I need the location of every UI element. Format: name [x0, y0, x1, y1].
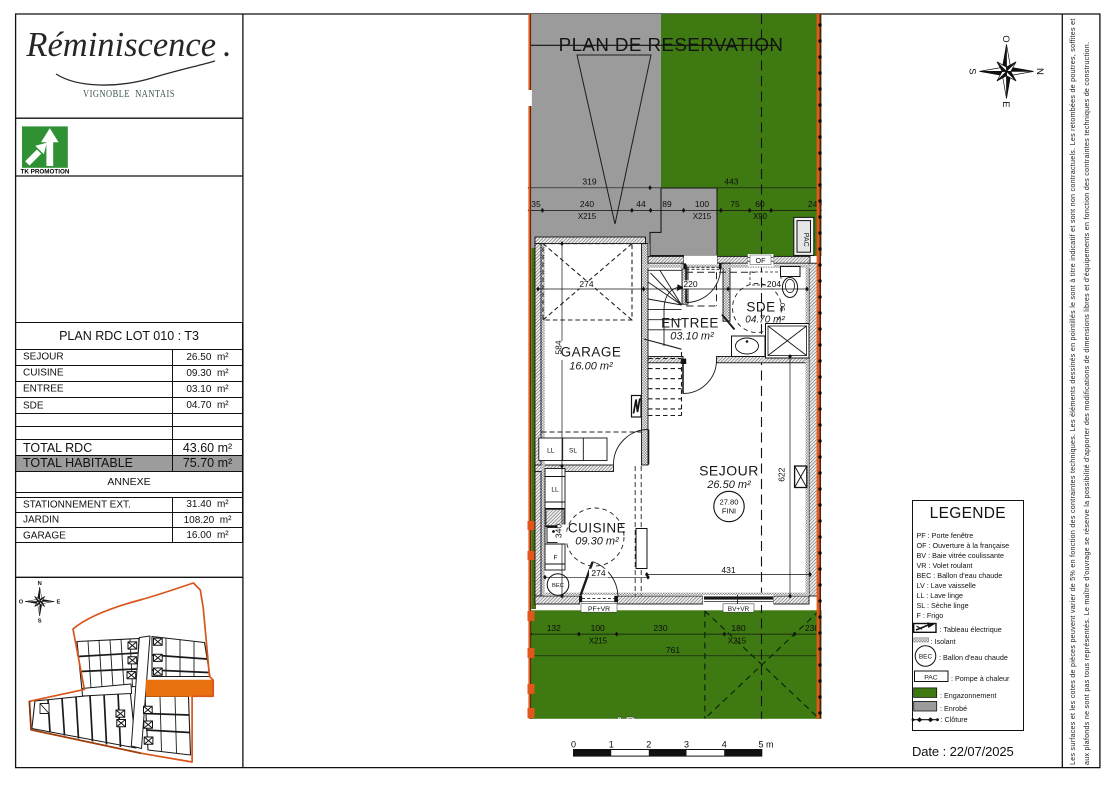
svg-text:S: S: [967, 68, 978, 74]
svg-text:N: N: [38, 581, 42, 587]
svg-text:X90: X90: [753, 212, 768, 221]
svg-text:LL: LL: [547, 447, 555, 454]
svg-text:26.50 m²: 26.50 m²: [706, 479, 751, 491]
svg-text:ENTREE: ENTREE: [661, 316, 719, 331]
svg-text:220: 220: [683, 279, 697, 289]
svg-text:5 m: 5 m: [758, 740, 773, 750]
svg-text:204: 204: [767, 279, 781, 289]
svg-text:16.00 m²: 16.00 m²: [569, 361, 613, 373]
svg-text:90: 90: [778, 303, 787, 311]
svg-text:O: O: [1000, 35, 1011, 42]
svg-text:3: 3: [684, 740, 689, 750]
svg-text:SEJOUR: SEJOUR: [699, 463, 759, 479]
svg-text:04.70 m²: 04.70 m²: [745, 315, 785, 326]
svg-text:132: 132: [547, 623, 561, 633]
svg-text:274: 274: [591, 568, 605, 578]
svg-text:BV+VR: BV+VR: [728, 606, 750, 613]
svg-text:E: E: [56, 600, 60, 606]
svg-text:230: 230: [653, 623, 667, 633]
svg-text:CUISINE: CUISINE: [568, 521, 626, 536]
svg-text:AR: AR: [614, 714, 637, 731]
svg-text:SDE: SDE: [746, 300, 775, 315]
svg-text:443: 443: [724, 176, 738, 186]
svg-text:LL: LL: [551, 487, 559, 494]
svg-text:OF: OF: [756, 256, 767, 265]
svg-text:240: 240: [580, 199, 594, 209]
svg-text:X215: X215: [578, 212, 597, 221]
svg-text:75: 75: [730, 199, 740, 209]
svg-text:60: 60: [755, 199, 765, 209]
svg-text:PAC: PAC: [924, 674, 938, 681]
svg-text:340: 340: [554, 524, 564, 538]
svg-text:622: 622: [777, 467, 787, 481]
svg-text:180: 180: [731, 623, 745, 633]
svg-text:X215: X215: [589, 637, 608, 646]
svg-text:761: 761: [666, 645, 680, 655]
svg-text:FINI: FINI: [722, 507, 736, 516]
svg-text:PAC: PAC: [802, 233, 809, 247]
svg-text:F: F: [554, 555, 558, 562]
svg-text:PLAN DE RESERVATION: PLAN DE RESERVATION: [559, 34, 784, 55]
svg-text:100: 100: [591, 623, 605, 633]
svg-text:PF+VR: PF+VR: [588, 606, 610, 613]
svg-text:89: 89: [662, 199, 672, 209]
svg-text:S: S: [38, 619, 42, 625]
svg-text:O: O: [19, 600, 24, 606]
svg-text:100: 100: [695, 199, 709, 209]
svg-text:1: 1: [609, 740, 614, 750]
svg-text:E: E: [1000, 101, 1011, 107]
svg-text:35: 35: [531, 199, 541, 209]
svg-text:0: 0: [571, 740, 576, 750]
svg-text:X215: X215: [693, 212, 712, 221]
svg-text:27.80: 27.80: [719, 498, 738, 507]
svg-text:431: 431: [721, 565, 735, 575]
svg-text:44: 44: [636, 199, 646, 209]
svg-text:SL: SL: [569, 447, 577, 454]
svg-text:274: 274: [579, 279, 593, 289]
svg-text:BEC: BEC: [919, 654, 933, 661]
svg-text:09.30 m²: 09.30 m²: [575, 536, 619, 548]
svg-text:4: 4: [722, 740, 727, 750]
svg-text:03.10 m²: 03.10 m²: [670, 331, 714, 343]
svg-text:319: 319: [582, 176, 596, 186]
svg-text:GARAGE: GARAGE: [561, 345, 622, 360]
svg-text:N: N: [1034, 68, 1045, 75]
svg-text:2: 2: [646, 740, 651, 750]
svg-text:TK PROMOTION: TK PROMOTION: [21, 169, 70, 176]
